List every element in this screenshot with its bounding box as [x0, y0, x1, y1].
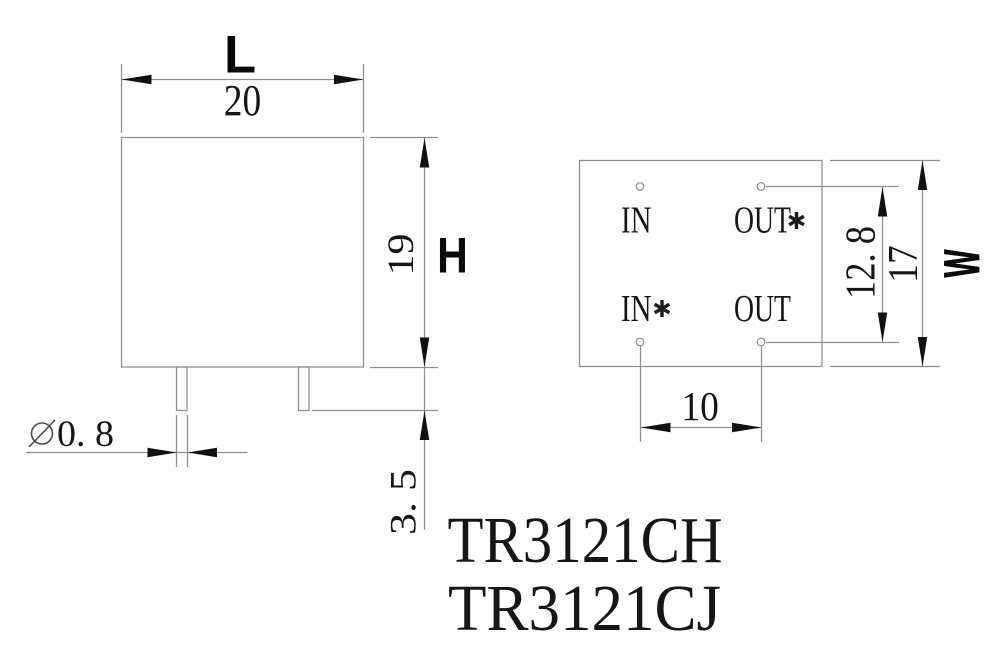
svg-text:20: 20 — [224, 76, 262, 125]
svg-text:H: H — [437, 227, 468, 283]
svg-text:TR3121CJ: TR3121CJ — [448, 572, 721, 645]
svg-text:OUT: OUT — [734, 288, 791, 330]
svg-text:12. 8: 12. 8 — [839, 226, 885, 299]
svg-text:W: W — [934, 249, 990, 277]
svg-text:TR3121CH: TR3121CH — [448, 504, 723, 577]
svg-text:IN: IN — [621, 288, 652, 330]
svg-text:10: 10 — [681, 383, 719, 429]
svg-text:OUT: OUT — [734, 200, 791, 242]
svg-text:0. 8: 0. 8 — [57, 414, 114, 455]
svg-text:IN: IN — [621, 200, 652, 242]
svg-text:19: 19 — [381, 234, 422, 276]
svg-text:17: 17 — [881, 245, 927, 283]
svg-text:3. 5: 3. 5 — [384, 469, 425, 535]
